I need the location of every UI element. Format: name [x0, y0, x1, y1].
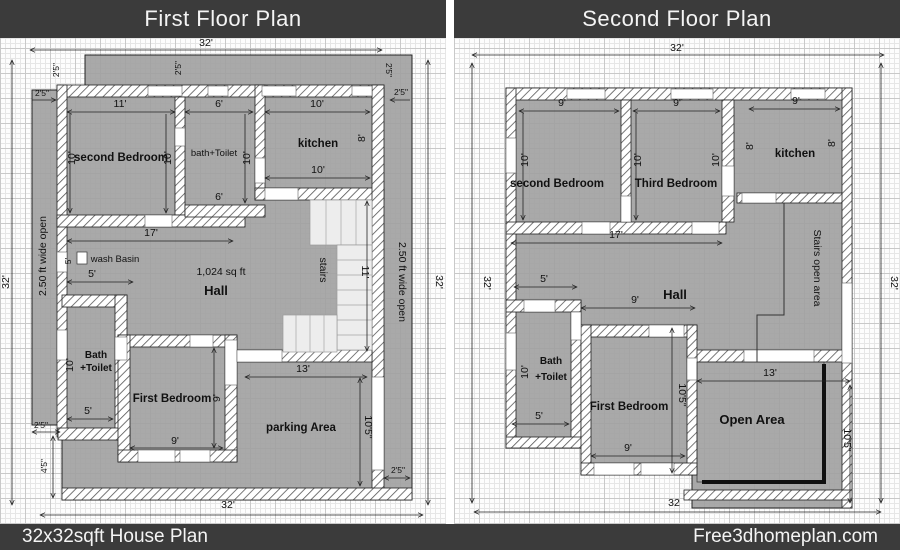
dim-10: 10'	[311, 164, 325, 176]
dim-8: 8'	[744, 142, 756, 150]
dim-5: 5'	[84, 405, 92, 417]
room-bath: Bath	[540, 356, 562, 367]
wash-basin-icon	[77, 252, 87, 264]
room-third-bedroom: Third Bedroom	[635, 178, 717, 190]
dim-10: 10'	[310, 98, 324, 110]
dim-17: 17'	[144, 227, 158, 239]
first-floor-plan-drawing: 32' 32' 32' 32' 2'5" 2'5" 2'5" 2'5" 2'5"…	[0, 38, 446, 524]
wall	[722, 100, 734, 222]
dim-10: 10'	[632, 153, 644, 167]
second-floor-title: Second Floor Plan	[454, 0, 900, 38]
dim-10: 10'	[241, 151, 253, 165]
room-parking: parking Area	[266, 422, 336, 434]
label-wash-basin: wash Basin	[90, 254, 140, 265]
footer-bar: 32x32sqft House Plan Free3dhomeplan.com	[0, 524, 900, 550]
wall	[175, 97, 185, 215]
dim-9: 9'	[673, 97, 681, 109]
room-second-bedroom: second Bedroom	[74, 152, 168, 164]
label-open-left: 2.50 ft wide open	[37, 216, 49, 296]
dim-5: 5'	[535, 410, 543, 422]
room-open-area: Open Area	[719, 412, 785, 427]
dim-5: 5'	[63, 257, 73, 264]
dim-32-top: 32'	[670, 42, 684, 54]
room-stairs: stairs	[317, 257, 329, 282]
dim-2-5: 2'5"	[51, 63, 61, 77]
room-kitchen: kitchen	[298, 138, 338, 150]
dim-10: 10'	[64, 358, 76, 372]
wall	[118, 450, 237, 462]
dim-17: 17'	[609, 229, 623, 241]
dim-2-5: 2'5"	[34, 420, 48, 430]
dim-5: 5'	[540, 273, 548, 285]
dim-9: 9'	[631, 294, 639, 306]
dim-6: 6'	[215, 191, 223, 203]
wall	[118, 335, 237, 347]
footer-website: Free3dhomeplan.com	[693, 526, 878, 548]
label-hall-area: 1,024 sq ft	[196, 266, 245, 278]
dim-2-5: 2'5"	[391, 465, 405, 475]
dim-10-5: 10'5"	[676, 383, 688, 407]
dim-10: 10'	[519, 365, 531, 379]
dim-9: 9'	[792, 95, 800, 107]
dim-2-5: 2'5"	[384, 63, 394, 77]
room-toilet: +Toilet	[535, 372, 567, 383]
dim-10: 10'	[519, 153, 531, 167]
dim-32-left: 32'	[481, 276, 493, 290]
room-first-bedroom: First Bedroom	[590, 401, 669, 413]
dim-13: 13'	[763, 367, 777, 379]
dim-11: 11'	[359, 266, 371, 279]
dim-32-bottom: 32'	[221, 499, 235, 511]
dim-9: 9'	[211, 394, 223, 402]
dim-10: 10'	[710, 153, 722, 167]
first-floor-grid-paper: 32' 32' 32' 32' 2'5" 2'5" 2'5" 2'5" 2'5"…	[0, 38, 446, 524]
room-bath-toilet-top: bath+Toilet	[191, 148, 238, 159]
label-stairs-open-area: Stairs open area	[811, 229, 823, 306]
room-hall: Hall	[663, 287, 687, 302]
wall	[684, 490, 852, 500]
dim-6: 6'	[215, 98, 223, 110]
dim-9: 9'	[624, 442, 632, 454]
dim-8: 8'	[356, 134, 368, 142]
dim-32-left: 32'	[0, 275, 12, 289]
dim-32-top: 32'	[199, 38, 213, 49]
room-first-bedroom: First Bedroom	[133, 393, 212, 405]
dim-8: 8'	[826, 139, 838, 147]
dim-32-right: 32'	[888, 276, 900, 290]
dim-10-5: 10'5"	[841, 428, 853, 452]
room-bath: Bath	[85, 350, 107, 361]
dim-9: 9'	[558, 97, 566, 109]
first-floor-title: First Floor Plan	[0, 0, 446, 38]
dim-4-5: 4'5"	[39, 459, 49, 473]
room-second-bedroom: second Bedroom	[510, 178, 604, 190]
wall	[581, 325, 591, 475]
room-hall: Hall	[204, 283, 228, 298]
second-floor-plan-drawing: 32' 32' 32' 32 9' 9' 9' 10' 10' 10' 8' 8…	[454, 38, 900, 524]
dim-9: 9'	[171, 435, 179, 447]
dim-2-5: 2'5"	[394, 87, 408, 97]
room-toilet: +Toilet	[80, 363, 112, 374]
wall	[506, 437, 589, 448]
dim-2-5: 2'5"	[35, 88, 49, 98]
wall	[185, 205, 265, 217]
footer-plan-name: 32x32sqft House Plan	[22, 526, 208, 548]
dim-10-5: 10'5"	[362, 415, 374, 439]
dim-11: 11'	[114, 98, 127, 110]
room-kitchen: kitchen	[775, 148, 815, 160]
dim-32-right: 32'	[433, 275, 445, 289]
dim-13: 13'	[296, 363, 310, 375]
second-floor-grid-paper: 32' 32' 32' 32 9' 9' 9' 10' 10' 10' 8' 8…	[454, 38, 900, 524]
label-open-right: 2.50 ft wide open	[396, 242, 408, 322]
dim-2-5: 2'5"	[173, 61, 183, 75]
dim-5: 5'	[88, 268, 96, 280]
dim-32-bottom: 32	[668, 497, 680, 509]
wall	[62, 488, 412, 500]
